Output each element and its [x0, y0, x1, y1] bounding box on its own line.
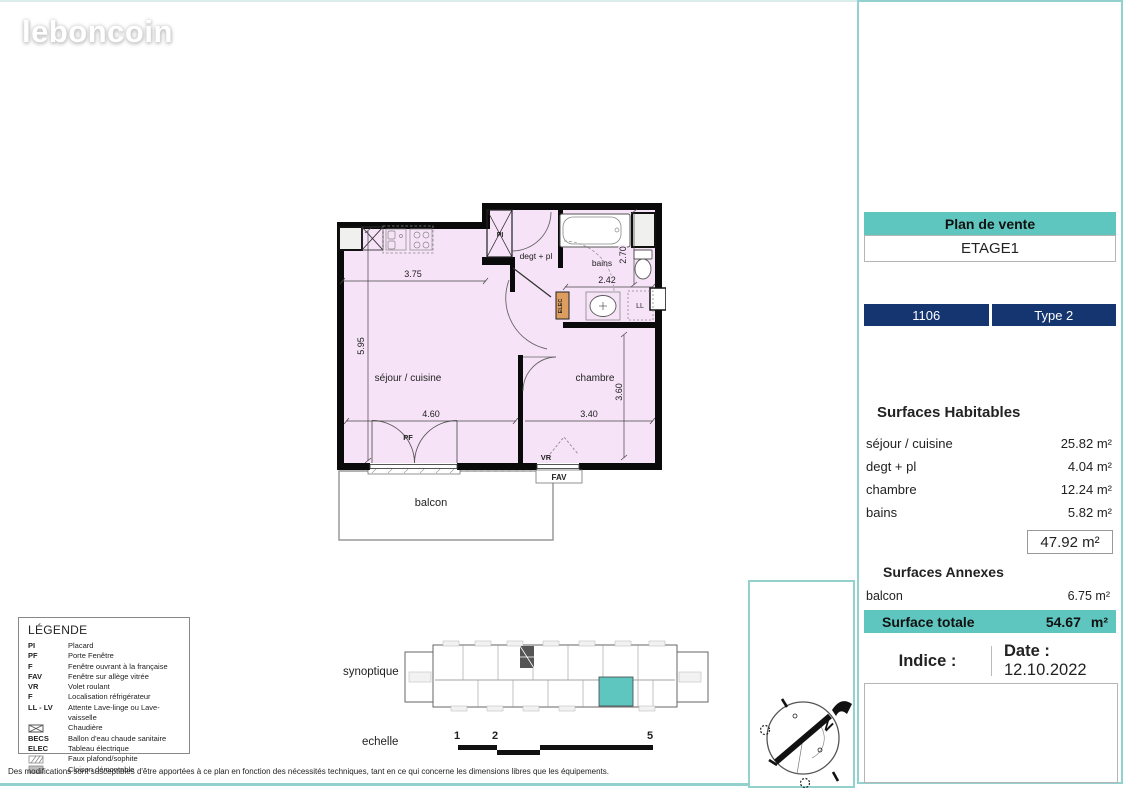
hatched-box-icon: [28, 754, 68, 764]
lot-number-box: 1106: [864, 304, 989, 326]
plan-de-vente-page: leboncoin: [0, 0, 1139, 800]
highlighted-unit: [599, 677, 633, 706]
room-label-bains: bains: [592, 258, 612, 268]
indice-label: Indice :: [864, 646, 992, 676]
dim-sejour-width: 4.60: [422, 409, 440, 419]
duct-top-left: [339, 227, 362, 250]
north-arrow-icon: [832, 701, 852, 716]
surfaces-habitables-table: séjour / cuisine25.82 m² degt + pl4.04 m…: [864, 432, 1116, 524]
surfaces-habitables-heading: Surfaces Habitables: [877, 404, 1020, 421]
legend-box: LÉGENDE PIPlacard PFPorte Fenêtre FFenêt…: [18, 617, 190, 754]
duct-bains: [632, 213, 655, 247]
tag-ll: LL: [636, 303, 644, 310]
bottom-border-line: [0, 783, 750, 786]
crossed-box-icon: [28, 723, 68, 733]
echelle-mark-1: 1: [454, 730, 460, 742]
room-label-degt: degt + pl: [520, 251, 553, 261]
notes-empty-box: [864, 683, 1118, 783]
scale-bar-segment: [540, 745, 653, 750]
legend-abbr: ELEC: [28, 744, 68, 754]
dim-chambre-width: 3.40: [580, 409, 598, 419]
top-border-line: [0, 0, 857, 2]
tag-pf: PF: [403, 433, 413, 442]
dim-sejour-top: 3.75: [404, 269, 422, 279]
etage-box: ETAGE1: [864, 235, 1116, 262]
room-label-chambre: chambre: [576, 373, 615, 384]
legend-abbr: PF: [28, 651, 68, 661]
room-label-balcon: balcon: [415, 497, 447, 509]
scale-bar-segment: [458, 745, 497, 750]
tag-elec: ELEC: [558, 299, 564, 314]
legend-abbr: PI: [28, 641, 68, 651]
surface-totale-value: 54.67: [1046, 614, 1081, 630]
indice-date-row: Indice : Date : 12.10.2022: [864, 643, 1116, 679]
echelle-mark-5: 5: [647, 730, 653, 742]
dim-sejour-height: 5.95: [356, 337, 366, 355]
date-label: Date :: [1004, 642, 1050, 660]
echelle-mark-2: 2: [492, 730, 498, 742]
synoptique-map: [403, 640, 710, 718]
table-row: bains5.82 m²: [864, 501, 1116, 524]
echelle-label: echelle: [362, 736, 398, 748]
legend-abbr: BECS: [28, 734, 68, 744]
legend-abbr: F: [28, 662, 68, 672]
toilet: [634, 250, 652, 279]
table-row: séjour / cuisine25.82 m²: [864, 432, 1116, 455]
plan-de-vente-header: Plan de vente: [864, 212, 1116, 235]
legend-abbr: F: [28, 692, 68, 702]
tag-fav: FAV: [552, 473, 568, 482]
disclaimer-text: Des modifications sont susceptibles d'êt…: [8, 767, 648, 776]
room-label-sejour: séjour / cuisine: [375, 373, 442, 384]
surface-totale-bar: Surface totale 54.67 m²: [864, 610, 1116, 633]
leboncoin-logo: leboncoin: [22, 14, 173, 50]
table-row: degt + pl4.04 m²: [864, 455, 1116, 478]
dim-chambre-height: 3.60: [614, 383, 624, 401]
dim-bains-height: 2.70: [618, 246, 628, 264]
habitable-total-box: 47.92 m²: [1027, 530, 1113, 554]
bathtub: [560, 214, 630, 247]
tag-pi: PI: [497, 232, 504, 239]
synoptique-label: synoptique: [343, 666, 399, 678]
title-block-panel: Plan de vente ETAGE1 1106 Type 2 Surface…: [857, 0, 1123, 784]
surfaces-annexes-heading: Surfaces Annexes: [883, 564, 1004, 580]
date-value: 12.10.2022: [1004, 661, 1087, 679]
floor-plan: 3.75 5.95 2.42 2.70 4.60 3.40 3.60 séjou…: [330, 196, 666, 548]
compass-rose: N: [757, 688, 852, 788]
legend-title: LÉGENDE: [28, 623, 183, 637]
legend-abbr: VR: [28, 682, 68, 692]
scale-bar-segment: [497, 750, 540, 755]
type-box: Type 2: [992, 304, 1117, 326]
table-row: chambre12.24 m²: [864, 478, 1116, 501]
stairs-marker: [520, 646, 534, 668]
dim-bains-width: 2.42: [598, 275, 616, 285]
table-row: balcon 6.75 m²: [864, 586, 1116, 606]
surface-totale-label: Surface totale: [882, 614, 975, 630]
pf-window: [370, 465, 457, 469]
surface-totale-unit: m²: [1091, 614, 1108, 630]
legend-abbr: LL - LV: [28, 703, 68, 713]
legend-abbr: FAV: [28, 672, 68, 682]
tag-vr: VR: [541, 453, 552, 462]
